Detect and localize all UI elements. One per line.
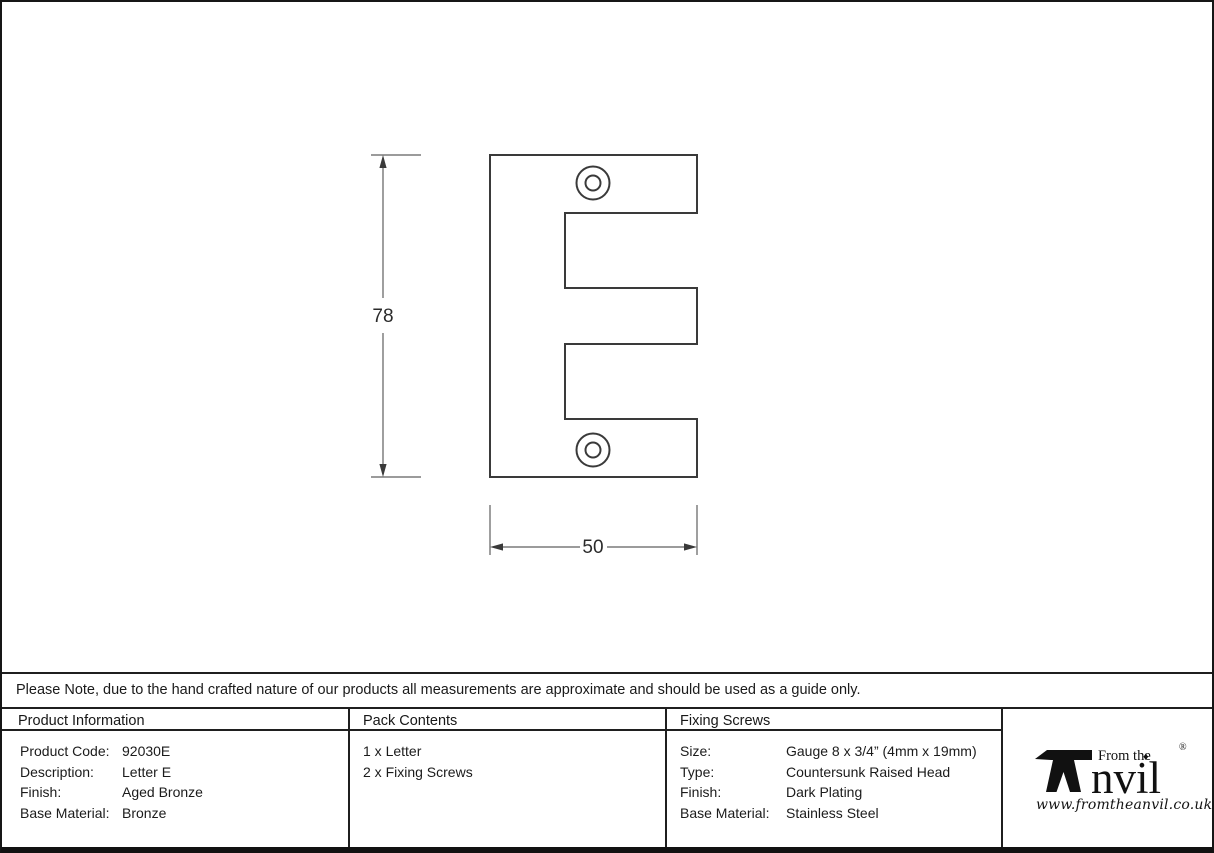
screw-size-label: Size: <box>680 741 786 762</box>
technical-drawing: 78 50 <box>2 2 1214 672</box>
description-row: Description: Letter E <box>20 762 340 783</box>
base-material-value: Bronze <box>122 803 166 824</box>
finish-label: Finish: <box>20 782 122 803</box>
note-row-top-border <box>2 672 1212 674</box>
screw-base-material-row: Base Material: Stainless Steel <box>680 803 995 824</box>
product-information-header: Product Information <box>18 712 145 730</box>
screw-size-value: Gauge 8 x 3/4” (4mm x 19mm) <box>786 741 977 762</box>
product-code-label: Product Code: <box>20 741 122 762</box>
arrow-left-icon <box>490 543 503 550</box>
screw-finish-label: Finish: <box>680 782 786 803</box>
screw-base-material-label: Base Material: <box>680 803 786 824</box>
description-label: Description: <box>20 762 122 783</box>
product-code-value: 92030E <box>122 741 170 762</box>
screw-type-label: Type: <box>680 762 786 783</box>
screw-type-value: Countersunk Raised Head <box>786 762 950 783</box>
anvil-icon <box>1035 747 1093 795</box>
screw-size-row: Size: Gauge 8 x 3/4” (4mm x 19mm) <box>680 741 995 762</box>
screw-finish-value: Dark Plating <box>786 782 862 803</box>
arrow-up-icon <box>379 155 386 168</box>
brand-logo: From the ♦ nvil ® www.fromtheanvil.co.uk <box>1003 709 1214 849</box>
registered-trademark-icon: ® <box>1179 742 1187 753</box>
datasheet-page: 78 50 Please Note, due to the hand craft… <box>0 0 1214 853</box>
measurement-note: Please Note, due to the hand crafted nat… <box>16 680 1116 701</box>
fixing-screws-cell: Size: Gauge 8 x 3/4” (4mm x 19mm) Type: … <box>680 741 995 823</box>
finish-value: Aged Bronze <box>122 782 203 803</box>
description-value: Letter E <box>122 762 171 783</box>
pack-contents-cell: 1 x Letter 2 x Fixing Screws <box>363 741 653 782</box>
divider-pack-fixing <box>665 707 667 847</box>
product-code-row: Product Code: 92030E <box>20 741 340 762</box>
screw-hole-top <box>577 167 610 200</box>
base-material-label: Base Material: <box>20 803 122 824</box>
letter-outline <box>490 155 697 477</box>
brand-url: www.fromtheanvil.co.uk <box>1036 797 1212 813</box>
screw-type-row: Type: Countersunk Raised Head <box>680 762 995 783</box>
height-dimension-label: 78 <box>372 306 393 327</box>
screw-hole-bottom <box>577 434 610 467</box>
height-dimension: 78 <box>371 155 421 477</box>
logo-wordmark: nvil <box>1091 756 1161 801</box>
pack-contents-header: Pack Contents <box>363 712 457 730</box>
header-row-bottom-border <box>2 729 1003 731</box>
product-information-cell: Product Code: 92030E Description: Letter… <box>20 741 340 823</box>
arrow-down-icon <box>379 464 386 477</box>
arrow-right-icon <box>684 543 697 550</box>
width-dimension-label: 50 <box>582 537 603 558</box>
fixing-screws-header: Fixing Screws <box>680 712 770 730</box>
pack-item: 1 x Letter <box>363 741 653 762</box>
pack-item: 2 x Fixing Screws <box>363 762 653 783</box>
screw-finish-row: Finish: Dark Plating <box>680 782 995 803</box>
finish-row: Finish: Aged Bronze <box>20 782 340 803</box>
base-material-row: Base Material: Bronze <box>20 803 340 824</box>
width-dimension: 50 <box>490 505 697 558</box>
divider-product-pack <box>348 707 350 847</box>
screw-base-material-value: Stainless Steel <box>786 803 879 824</box>
